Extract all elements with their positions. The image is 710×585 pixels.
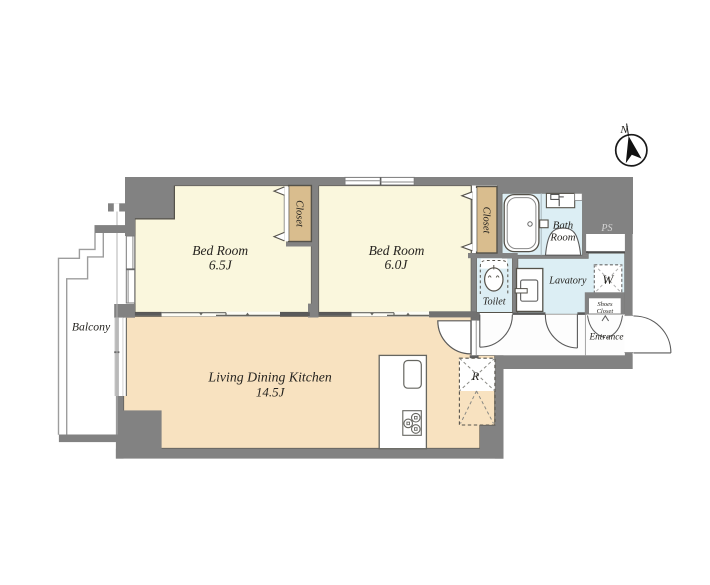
- svg-text:Shoes: Shoes: [597, 301, 613, 308]
- svg-text:14.5J: 14.5J: [256, 385, 286, 400]
- svg-text:W: W: [602, 272, 614, 287]
- svg-text:N: N: [619, 124, 628, 136]
- svg-text:Bath: Bath: [553, 220, 573, 232]
- svg-text:Balcony: Balcony: [72, 321, 111, 334]
- svg-text:Bed Room: Bed Room: [192, 243, 248, 258]
- svg-text:Toilet: Toilet: [483, 297, 507, 308]
- svg-text:Closet: Closet: [293, 200, 304, 228]
- svg-text:Closet: Closet: [597, 308, 614, 315]
- svg-text:Lavatory: Lavatory: [548, 276, 587, 287]
- svg-text:Room: Room: [549, 232, 575, 244]
- svg-text:6.5J: 6.5J: [209, 258, 233, 273]
- svg-text:Entrance: Entrance: [588, 333, 623, 343]
- svg-text:6.0J: 6.0J: [384, 257, 408, 272]
- svg-text:PS: PS: [600, 223, 612, 234]
- svg-text:Living Dining Kitchen: Living Dining Kitchen: [207, 370, 331, 385]
- svg-text:Closet: Closet: [481, 207, 492, 235]
- svg-text:R: R: [471, 369, 480, 383]
- svg-text:Bed Room: Bed Room: [369, 243, 425, 258]
